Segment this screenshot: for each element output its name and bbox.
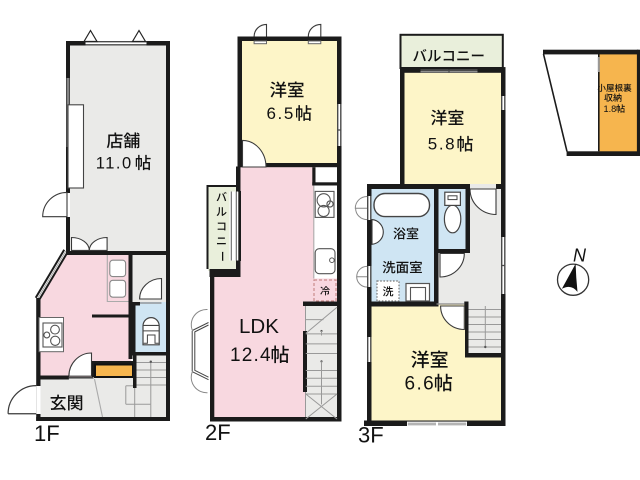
svg-text:LDK: LDK — [239, 315, 279, 338]
svg-text:N: N — [573, 246, 587, 266]
svg-text:3F: 3F — [358, 423, 384, 448]
svg-text:5.8: 5.8 — [428, 135, 456, 154]
svg-text:11.0: 11.0 — [96, 154, 133, 172]
svg-text:2F: 2F — [205, 420, 231, 445]
svg-text:1.8: 1.8 — [604, 104, 617, 114]
svg-text:6.5: 6.5 — [267, 104, 295, 123]
svg-text:1F: 1F — [34, 421, 60, 446]
svg-text:6.6: 6.6 — [405, 373, 436, 394]
svg-text:12.4: 12.4 — [230, 345, 272, 366]
